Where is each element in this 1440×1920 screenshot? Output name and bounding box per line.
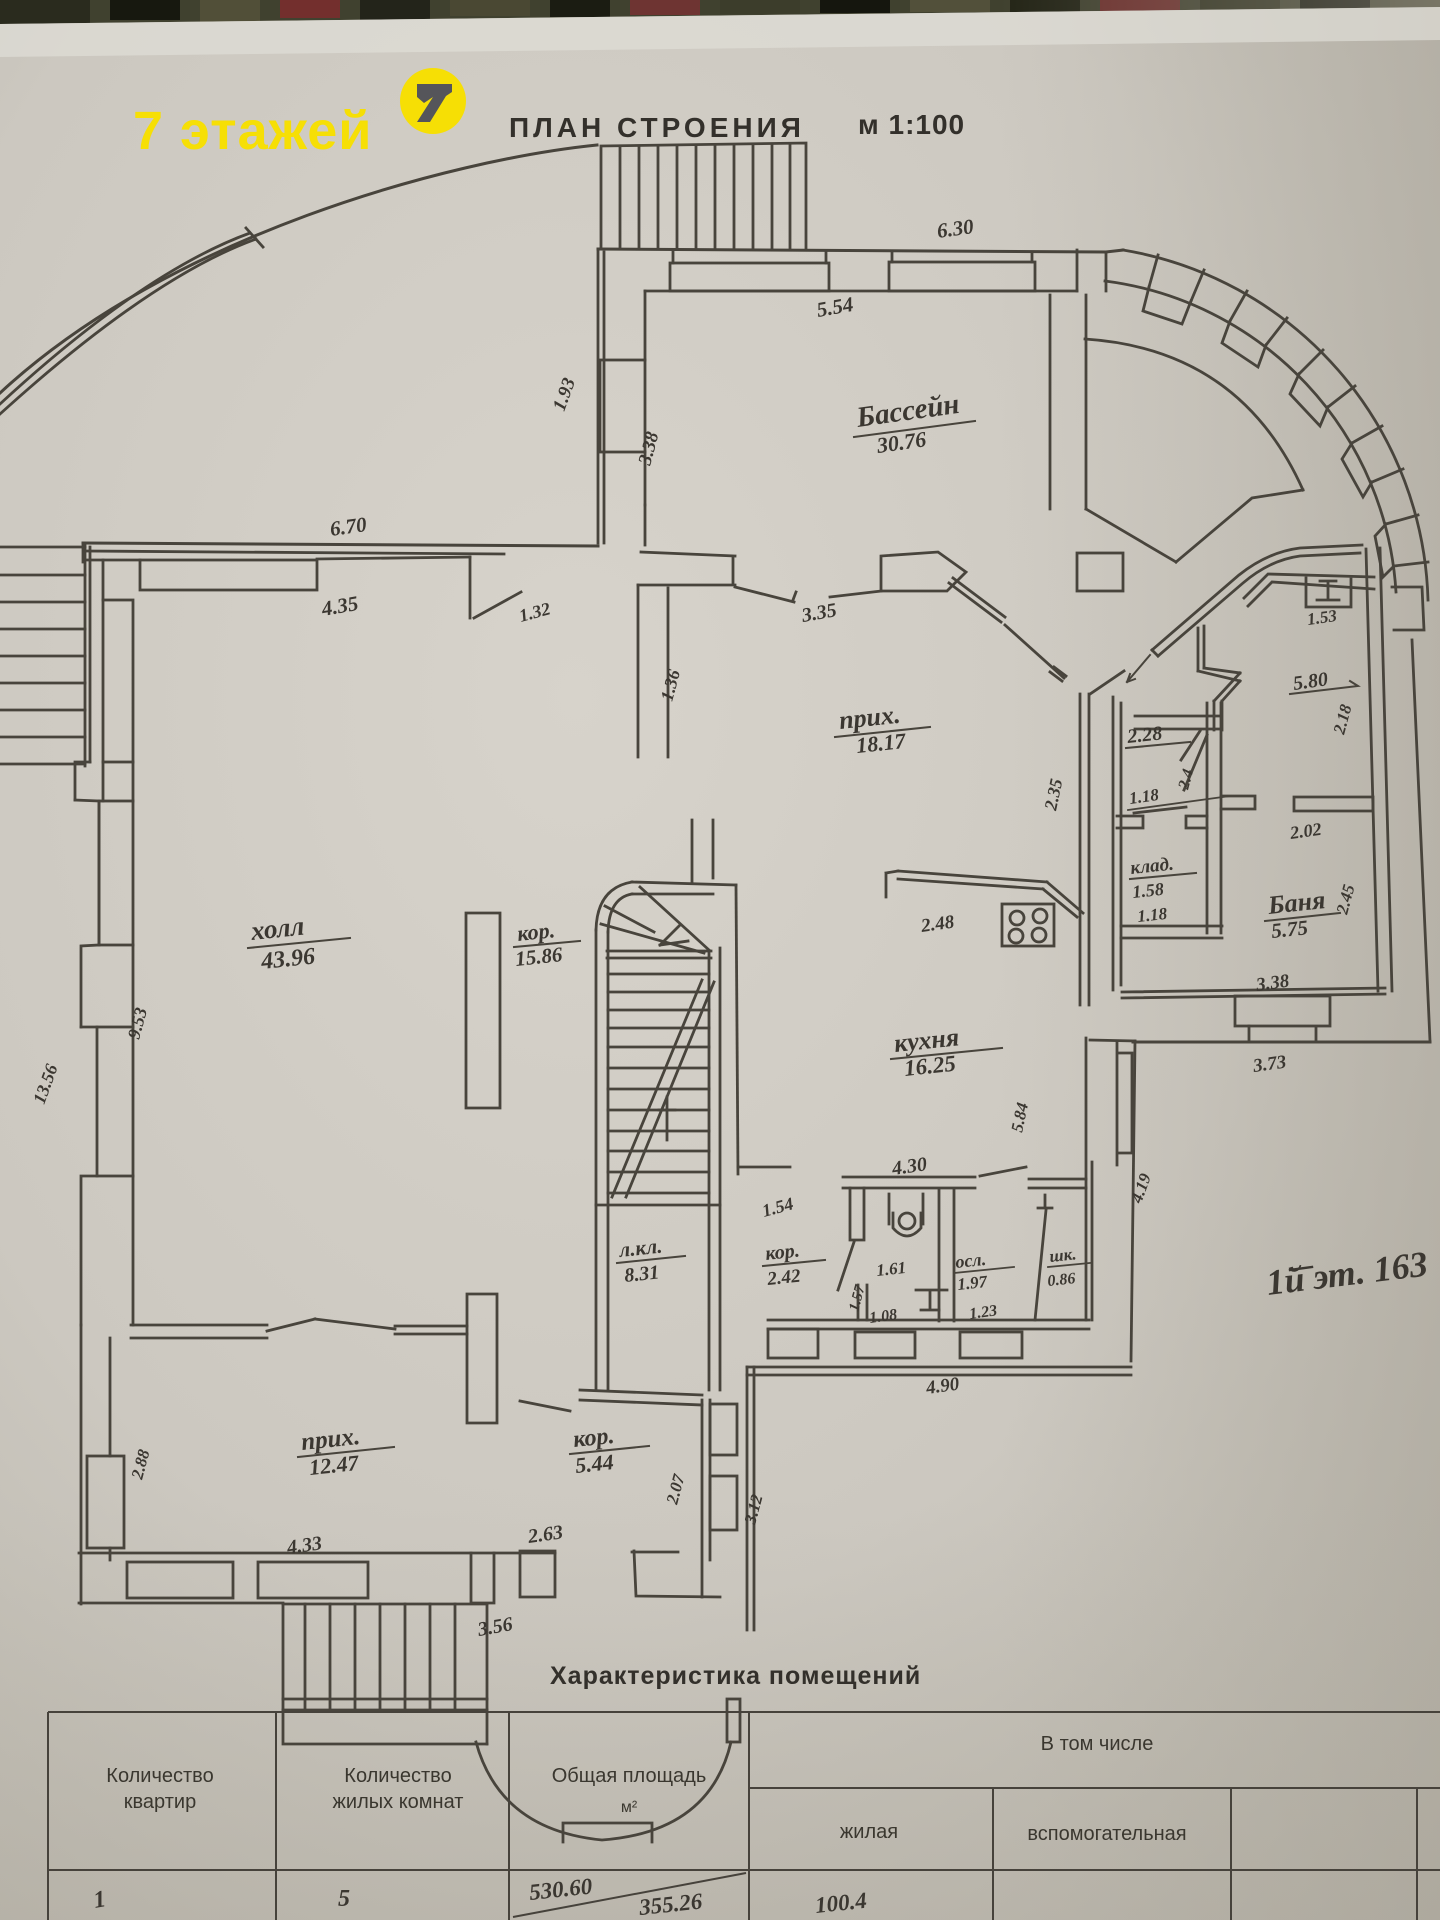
svg-text:Общая площадь: Общая площадь [552, 1765, 707, 1787]
svg-text:Характеристика помещений: Характеристика помещений [550, 1662, 921, 1690]
svg-text:В том числе: В том числе [1041, 1733, 1154, 1755]
svg-text:7 этажей: 7 этажей [133, 101, 372, 161]
svg-text:кор.: кор. [764, 1240, 800, 1265]
svg-text:8.31: 8.31 [623, 1261, 660, 1287]
svg-text:6.30: 6.30 [935, 214, 975, 243]
svg-text:жилая: жилая [840, 1821, 898, 1843]
svg-text:1.18: 1.18 [1136, 904, 1168, 926]
svg-text:Количество: Количество [106, 1765, 213, 1787]
svg-text:1.61: 1.61 [875, 1258, 907, 1280]
svg-text:кор.: кор. [516, 917, 556, 946]
svg-text:жилых комнат: жилых комнат [333, 1791, 464, 1813]
svg-text:6.70: 6.70 [328, 512, 368, 541]
svg-text:0.86: 0.86 [1047, 1270, 1077, 1290]
svg-text:Количество: Количество [344, 1765, 451, 1787]
svg-text:15.86: 15.86 [514, 942, 564, 971]
svg-text:1.58: 1.58 [1131, 879, 1164, 902]
svg-text:л.кл.: л.кл. [617, 1234, 663, 1262]
svg-text:2.42: 2.42 [765, 1266, 802, 1291]
svg-text:холл: холл [248, 911, 305, 947]
svg-text:18.17: 18.17 [855, 728, 908, 758]
svg-text:5.44: 5.44 [574, 1449, 615, 1478]
svg-text:12.47: 12.47 [308, 1450, 361, 1480]
svg-text:5.75: 5.75 [1270, 915, 1309, 943]
svg-text:м²: м² [621, 1799, 638, 1816]
svg-text:м 1:100: м 1:100 [858, 109, 965, 140]
svg-text:квартир: квартир [124, 1791, 196, 1813]
svg-text:шк.: шк. [1048, 1244, 1077, 1266]
svg-text:ПЛАН СТРОЕНИЯ: ПЛАН СТРОЕНИЯ [509, 112, 805, 143]
svg-text:осл.: осл. [954, 1249, 987, 1272]
svg-text:5: 5 [338, 1886, 350, 1912]
svg-text:вспомогательная: вспомогательная [1027, 1823, 1186, 1845]
svg-text:1.97: 1.97 [956, 1272, 989, 1294]
